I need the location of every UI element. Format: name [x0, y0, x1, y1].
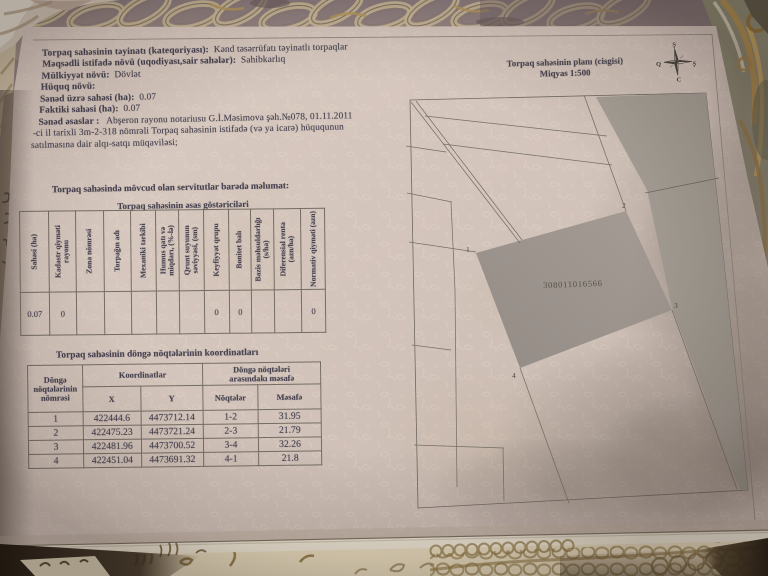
svg-text:C: C: [677, 77, 682, 84]
svg-text:Ş: Ş: [672, 42, 676, 49]
svg-text:308011016566: 308011016566: [543, 278, 603, 290]
svg-text:1: 1: [466, 245, 470, 254]
svg-text:Ş: Ş: [692, 61, 696, 68]
svg-text:3: 3: [674, 301, 678, 310]
svg-text:4: 4: [512, 371, 516, 380]
